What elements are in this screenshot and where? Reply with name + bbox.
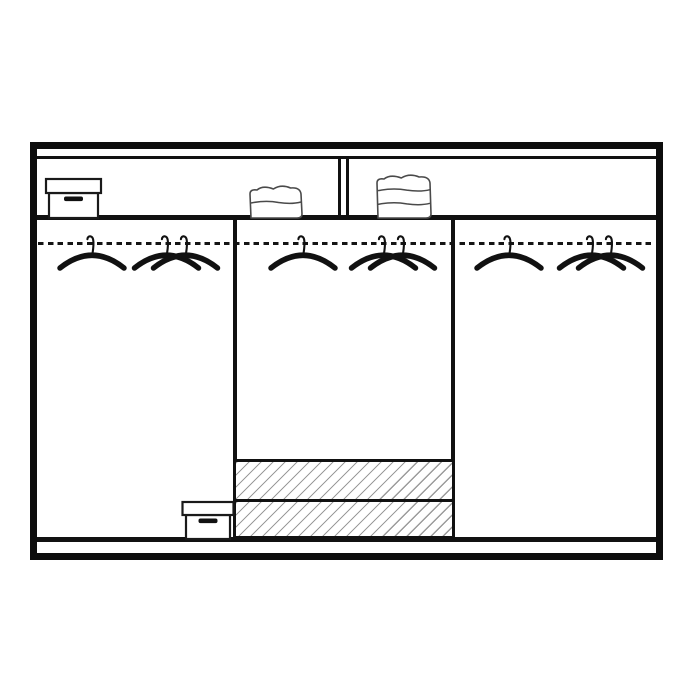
base-panel-line: [37, 537, 656, 542]
wardrobe-diagram: [0, 0, 700, 700]
shelf-compartment-wall-left: [338, 156, 341, 220]
drawer-bottom-hatched: [233, 499, 455, 539]
shelf-compartment-wall-right: [346, 156, 349, 220]
hanging-rail-dashed-line: [38, 242, 655, 245]
drawer-top-hatched: [233, 459, 455, 502]
